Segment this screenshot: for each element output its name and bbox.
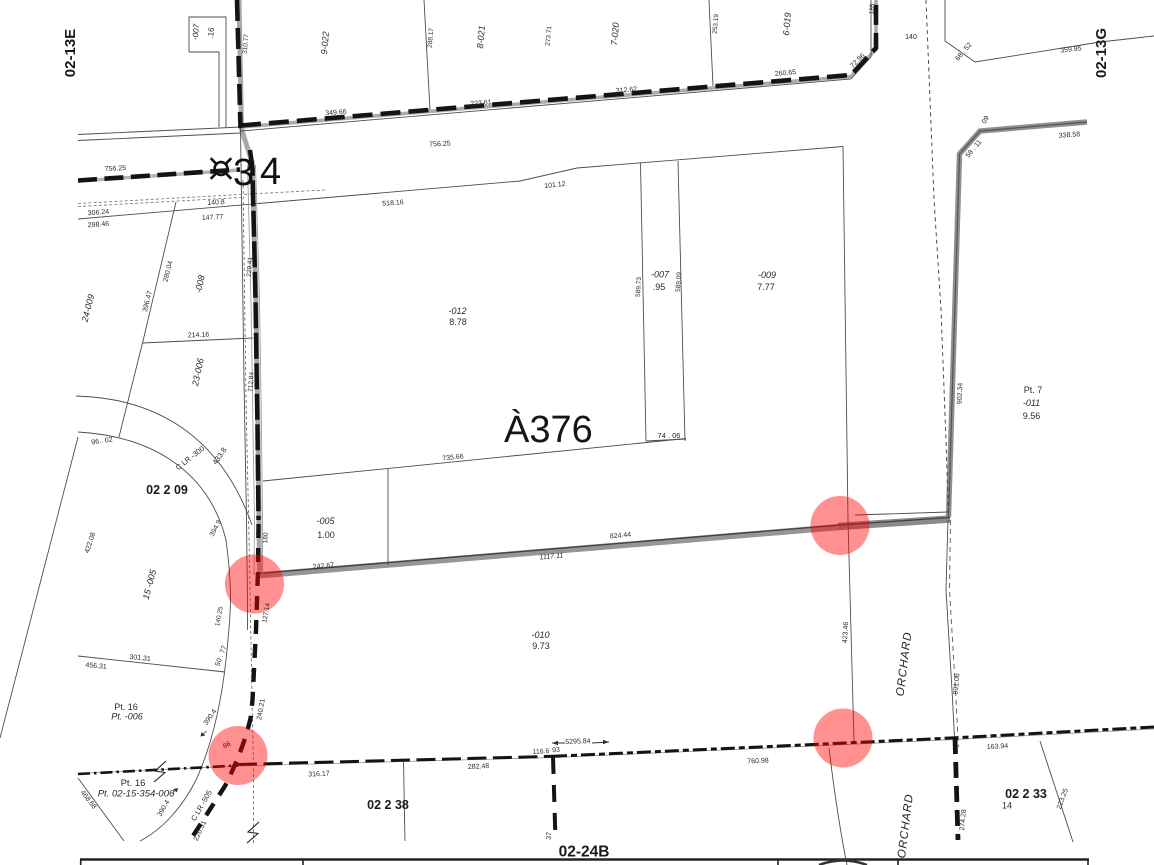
svg-text:147.77: 147.77	[202, 214, 224, 222]
svg-text:8-021: 8-021	[475, 25, 487, 49]
svg-text:-007: -007	[191, 23, 201, 40]
svg-text:-012: -012	[448, 306, 466, 316]
svg-text:Pt. 7: Pt. 7	[1024, 385, 1043, 395]
svg-text:163.94: 163.94	[987, 743, 1009, 751]
svg-text:185: 185	[869, 3, 877, 15]
svg-text:902.34: 902.34	[957, 383, 965, 405]
svg-text:-009: -009	[758, 270, 776, 280]
svg-text:760.98: 760.98	[747, 758, 769, 766]
svg-text:9.56: 9.56	[1023, 411, 1041, 421]
svg-text:-007: -007	[651, 270, 670, 280]
svg-text:À376: À376	[504, 408, 593, 451]
svg-text:116.6: 116.6	[532, 748, 549, 756]
svg-text:02-13E: 02-13E	[62, 29, 79, 77]
svg-text:Pt. 02-15-354-006: Pt. 02-15-354-006	[98, 789, 175, 800]
svg-text:712.84: 712.84	[247, 371, 255, 392]
svg-text:229.41: 229.41	[246, 256, 254, 277]
svg-text:6-019: 6-019	[781, 12, 793, 36]
svg-text:338.58: 338.58	[1059, 131, 1081, 139]
svg-text:Pt. 16: Pt. 16	[121, 778, 146, 789]
svg-text:7.77: 7.77	[757, 282, 775, 292]
svg-text:214.16: 214.16	[188, 332, 210, 340]
svg-text:589.73: 589.73	[635, 277, 643, 298]
svg-text:5295.84: 5295.84	[565, 738, 591, 746]
svg-text:316.17: 316.17	[308, 770, 330, 778]
svg-text:93: 93	[552, 747, 560, 754]
svg-text:518.16: 518.16	[382, 199, 404, 207]
svg-text:.95: .95	[653, 282, 666, 292]
svg-text:306.24: 306.24	[88, 209, 110, 217]
svg-text:756.25: 756.25	[105, 165, 127, 173]
svg-text:140: 140	[905, 34, 917, 41]
svg-text:02-13G: 02-13G	[1093, 28, 1110, 78]
svg-text:756.25: 756.25	[429, 140, 451, 148]
svg-text:8.78: 8.78	[449, 317, 467, 327]
svg-text:7-020: 7-020	[609, 22, 621, 46]
svg-text:423.46: 423.46	[842, 622, 850, 644]
svg-text:-005: -005	[316, 516, 335, 526]
svg-text:3: 3	[233, 152, 254, 194]
svg-text:37: 37	[546, 832, 554, 840]
svg-text:1.00: 1.00	[317, 530, 335, 540]
svg-text:Pt. -006: Pt. -006	[111, 712, 143, 722]
svg-text:02 2 38: 02 2 38	[367, 798, 409, 812]
svg-text:-010: -010	[531, 630, 549, 640]
svg-text:9-022: 9-022	[319, 31, 331, 55]
svg-text:-011: -011	[1023, 398, 1040, 408]
svg-text:298.46: 298.46	[88, 221, 110, 229]
svg-text:02-24B: 02-24B	[559, 844, 610, 861]
svg-text:02 2 33: 02 2 33	[1005, 787, 1047, 801]
svg-text:74 . 06: 74 . 06	[658, 431, 681, 440]
svg-text:.16: .16	[206, 27, 216, 39]
svg-text:140.8: 140.8	[207, 199, 225, 207]
svg-text:4: 4	[260, 151, 281, 193]
svg-text:9.73: 9.73	[532, 641, 550, 651]
svg-text:02 2 09: 02 2 09	[146, 483, 188, 497]
svg-text:589.09: 589.09	[675, 272, 683, 293]
svg-text:Pt. 16: Pt. 16	[114, 702, 138, 712]
svg-text:282.48: 282.48	[468, 763, 490, 771]
svg-text:180: 180	[262, 532, 270, 544]
svg-text:14: 14	[1002, 801, 1012, 811]
